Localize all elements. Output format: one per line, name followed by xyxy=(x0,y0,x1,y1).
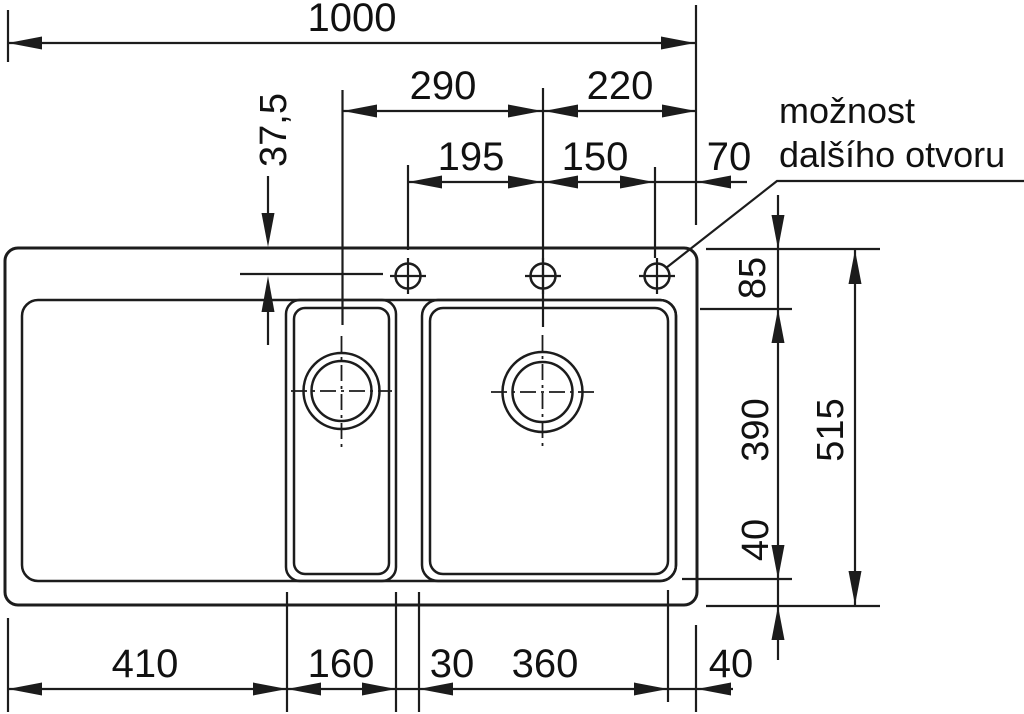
technical-drawing-canvas: možnost dalšího otvoru 1000 290 220 195 … xyxy=(0,0,1024,714)
dim-290-value: 290 xyxy=(410,64,477,108)
leader-line xyxy=(666,181,1024,268)
faucet-hole-1 xyxy=(390,258,426,294)
dim-overall-depth: 515 xyxy=(810,250,862,605)
dim-390-value: 390 xyxy=(735,398,777,461)
dim-70-value: 70 xyxy=(707,135,752,179)
dim-220-value: 220 xyxy=(587,64,654,108)
sink-dimension-drawing: možnost dalšího otvoru 1000 290 220 195 … xyxy=(0,0,1024,714)
faucet-hole-3-crosshair xyxy=(639,258,675,294)
dim-290-220-extension-lines xyxy=(343,88,544,327)
dim-37-5-value: 37,5 xyxy=(253,93,295,167)
dim-360-value: 360 xyxy=(512,642,579,686)
small-bowl xyxy=(286,300,396,581)
sink-outer-rim xyxy=(5,248,697,605)
sink-outline xyxy=(5,248,697,605)
dim-290-220: 290 220 xyxy=(343,64,697,327)
dim-410-value: 410 xyxy=(112,642,179,686)
dim-1000-value: 1000 xyxy=(308,0,397,40)
faucet-hole-3-optional xyxy=(639,258,675,294)
note-line-2: dalšího otvoru xyxy=(779,134,1005,175)
sink-inner-rim xyxy=(22,300,676,581)
dim-40-right-value: 40 xyxy=(735,519,777,561)
note-line-1: možnost xyxy=(779,90,915,131)
main-bowl xyxy=(422,300,676,581)
main-bowl-outer-edge xyxy=(422,300,676,581)
dim-160-value: 160 xyxy=(308,642,375,686)
dim-30-value: 30 xyxy=(430,642,475,686)
dim-bottom-chain: 410 160 30 360 40 xyxy=(8,590,753,712)
dim-195-150-70: 195 150 70 xyxy=(408,135,751,258)
dim-40-bottom-value: 40 xyxy=(709,642,754,686)
dim-37-5-arrows xyxy=(262,213,275,312)
dim-37-5-lines xyxy=(240,176,383,345)
dim-195-value: 195 xyxy=(438,135,505,179)
dim-85-value: 85 xyxy=(732,257,774,299)
dim-150-value: 150 xyxy=(562,135,629,179)
dim-515-value: 515 xyxy=(810,398,852,461)
main-bowl-inner-edge xyxy=(430,308,668,574)
faucet-hole-1-crosshair xyxy=(390,258,426,294)
faucet-holes xyxy=(390,258,675,294)
